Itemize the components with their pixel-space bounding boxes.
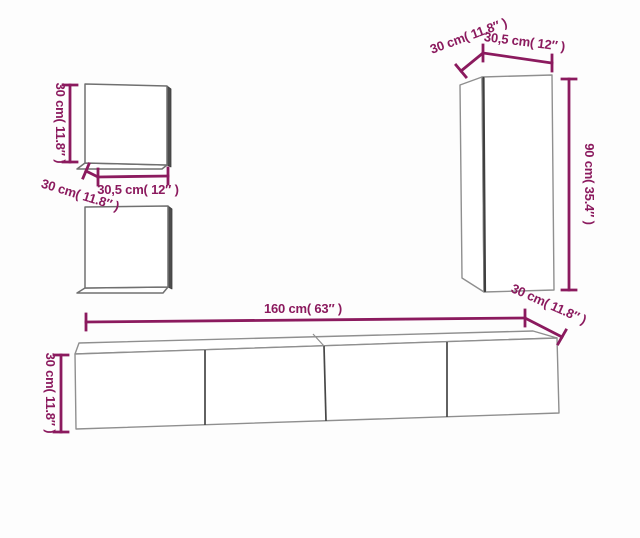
dim-line [483,53,552,63]
tall-cabinet-height-label: 90 cm( 35.4″ ) [582,143,597,224]
tall-cabinet-width-label: 30,5 cm( 12″ ) [483,29,566,54]
wall-cabinet-width-dimension: 30,5 cm( 12″ ) [97,168,178,197]
tv-bench-height-dimension: 30 cm( 11.8″ ) [43,353,68,434]
tall-cabinet-height-dimension: 90 cm( 35.4″ ) [562,79,597,290]
wall-cabinet-bottom [77,206,172,293]
wall-cabinet-height-label: 30 cm( 11.8″ ) [53,83,68,164]
tall-cabinet-width-dimension: 30,5 cm( 12″ ) [483,29,566,71]
tv-bench-height-label: 30 cm( 11.8″ ) [43,353,58,434]
wall-cabinet-top-front-face [85,84,167,165]
tv-bench [75,331,559,429]
tall-cabinet-depth-dimension: 30 cm( 11.8″ ) [428,15,509,77]
tall-cabinet-door-edge [484,78,486,291]
dim-line [461,53,483,71]
wall-cabinet-width-label: 30,5 cm( 12″ ) [97,182,178,197]
wall-cabinet-height-dimension: 30 cm( 11.8″ ) [53,83,77,164]
tv-bench-width-label: 160 cm( 63″ ) [264,301,342,316]
tall-cabinet [460,75,554,292]
tall-cabinet-front-face [482,75,554,292]
wall-cabinet-top [77,84,171,169]
tall-cabinet-side-face [460,77,484,292]
wall-cabinet-bottom-front-face [85,206,168,288]
tv-bench-width-dimension: 160 cm( 63″ ) [86,301,525,330]
dim-line [86,171,98,177]
tv-bench-front-face [75,338,559,429]
dim-line [86,318,525,322]
dim-line [98,176,168,177]
dimension-diagram-canvas: 30 cm( 11.8″ ) 30 cm( 11.8″ ) 30,5 cm( 1… [0,0,640,538]
furniture-dimension-diagram: 30 cm( 11.8″ ) 30 cm( 11.8″ ) 30,5 cm( 1… [0,0,640,538]
